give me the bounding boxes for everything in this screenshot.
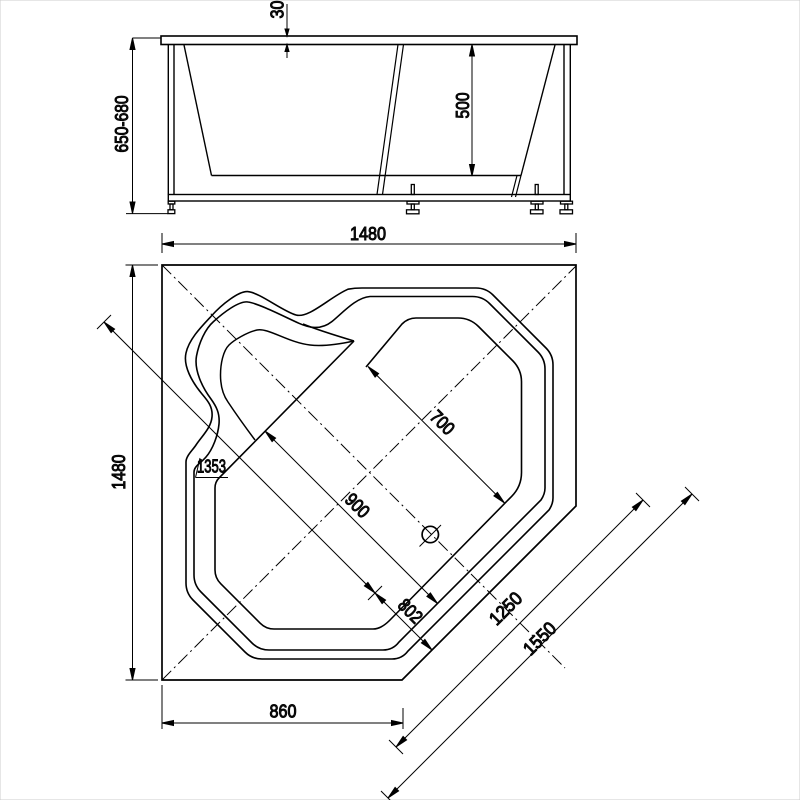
svg-text:30: 30 <box>267 1 288 19</box>
svg-text:650-680: 650-680 <box>111 96 132 153</box>
svg-text:1480: 1480 <box>350 223 386 244</box>
svg-text:500: 500 <box>452 93 473 119</box>
svg-text:860: 860 <box>270 701 297 722</box>
svg-text:1353: 1353 <box>197 456 226 477</box>
svg-text:1480: 1480 <box>108 455 129 490</box>
